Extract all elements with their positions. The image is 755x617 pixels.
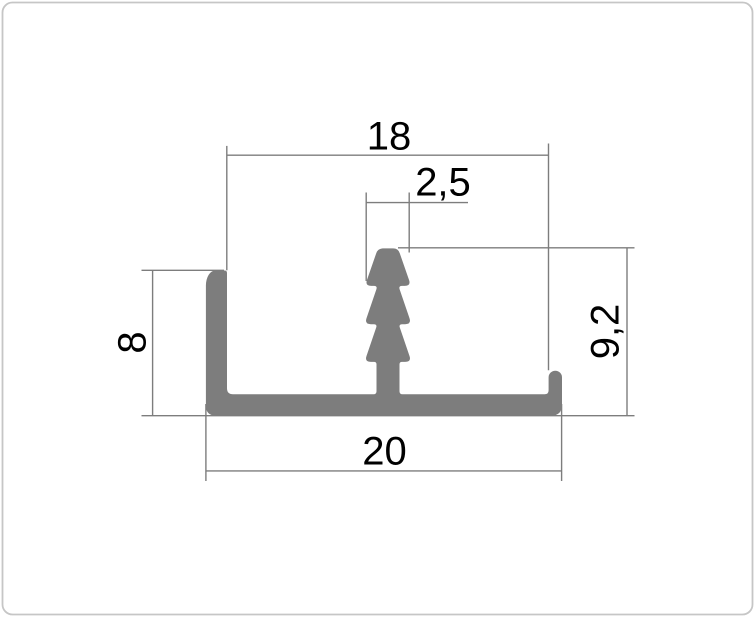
svg-text:8: 8 [110,331,154,353]
svg-text:20: 20 [362,430,407,474]
svg-text:2,5: 2,5 [415,161,471,205]
svg-text:9,2: 9,2 [583,304,627,360]
svg-text:18: 18 [367,115,412,159]
